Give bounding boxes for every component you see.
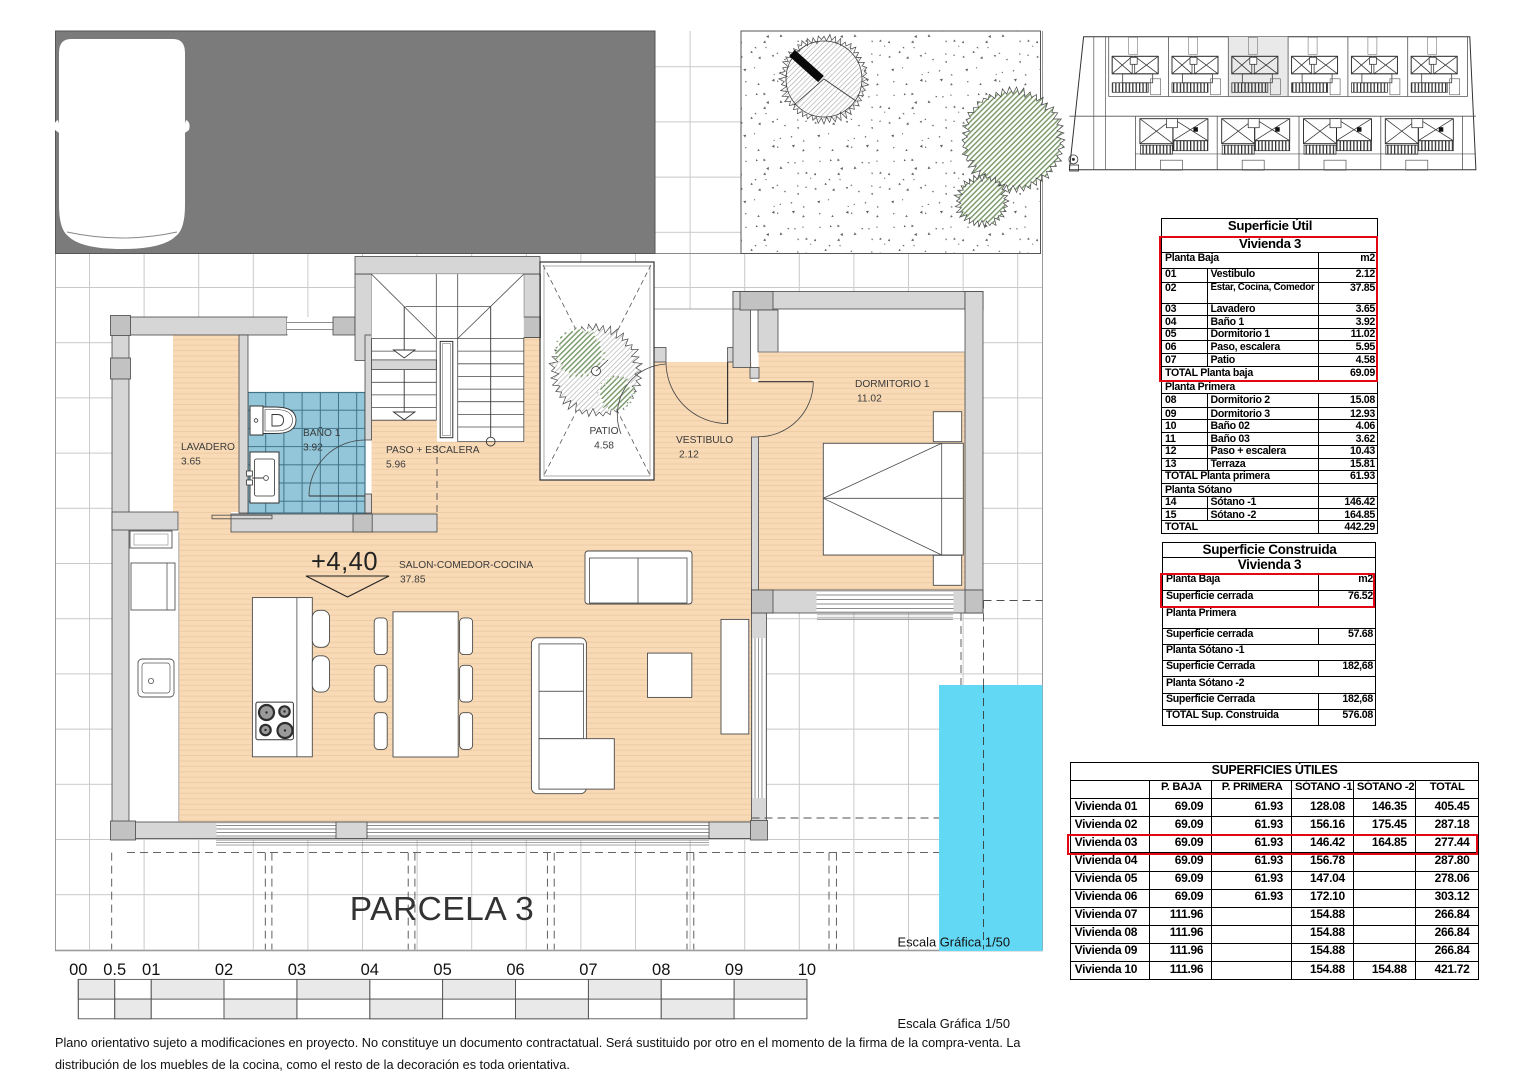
svg-text:Escala Gráfica 1/50: Escala Gráfica 1/50 [898, 1016, 1011, 1031]
svg-text:07: 07 [579, 961, 597, 979]
svg-text:10: 10 [798, 961, 816, 979]
svg-text:DORMITORIO 1: DORMITORIO 1 [855, 379, 930, 390]
svg-text:PASO + ESCALERA: PASO + ESCALERA [386, 445, 480, 456]
svg-text:+4,40: +4,40 [311, 548, 378, 576]
svg-text:0.5: 0.5 [103, 961, 126, 979]
svg-text:3.65: 3.65 [181, 457, 201, 468]
svg-text:2.12: 2.12 [679, 450, 699, 461]
svg-text:Plano orientativo sujeto a mod: Plano orientativo sujeto a modificacione… [55, 1036, 1021, 1050]
svg-text:3.92: 3.92 [303, 443, 323, 454]
svg-text:01: 01 [142, 961, 160, 979]
svg-text:06: 06 [506, 961, 524, 979]
svg-text:08: 08 [652, 961, 670, 979]
svg-text:PARCELA 3: PARCELA 3 [350, 891, 535, 928]
svg-text:VESTIBULO: VESTIBULO [676, 435, 733, 446]
svg-text:37.85: 37.85 [400, 575, 426, 586]
svg-text:BAÑO 1: BAÑO 1 [303, 426, 341, 439]
svg-text:05: 05 [433, 961, 451, 979]
svg-text:00: 00 [69, 961, 87, 979]
svg-text:02: 02 [215, 961, 233, 979]
svg-text:distribución de los muebles de: distribución de los muebles de la cocina… [55, 1058, 570, 1072]
svg-text:Escala Gráfica 1/50: Escala Gráfica 1/50 [898, 935, 1011, 950]
svg-text:04: 04 [361, 961, 379, 979]
svg-text:LAVADERO: LAVADERO [181, 442, 235, 453]
svg-text:SALON-COMEDOR-COCINA: SALON-COMEDOR-COCINA [399, 560, 533, 571]
svg-text:4.58: 4.58 [594, 441, 614, 452]
svg-text:5.96: 5.96 [386, 460, 406, 471]
svg-text:09: 09 [725, 961, 743, 979]
svg-text:11.02: 11.02 [857, 394, 882, 405]
svg-text:PATIO: PATIO [589, 426, 618, 437]
svg-text:03: 03 [288, 961, 306, 979]
